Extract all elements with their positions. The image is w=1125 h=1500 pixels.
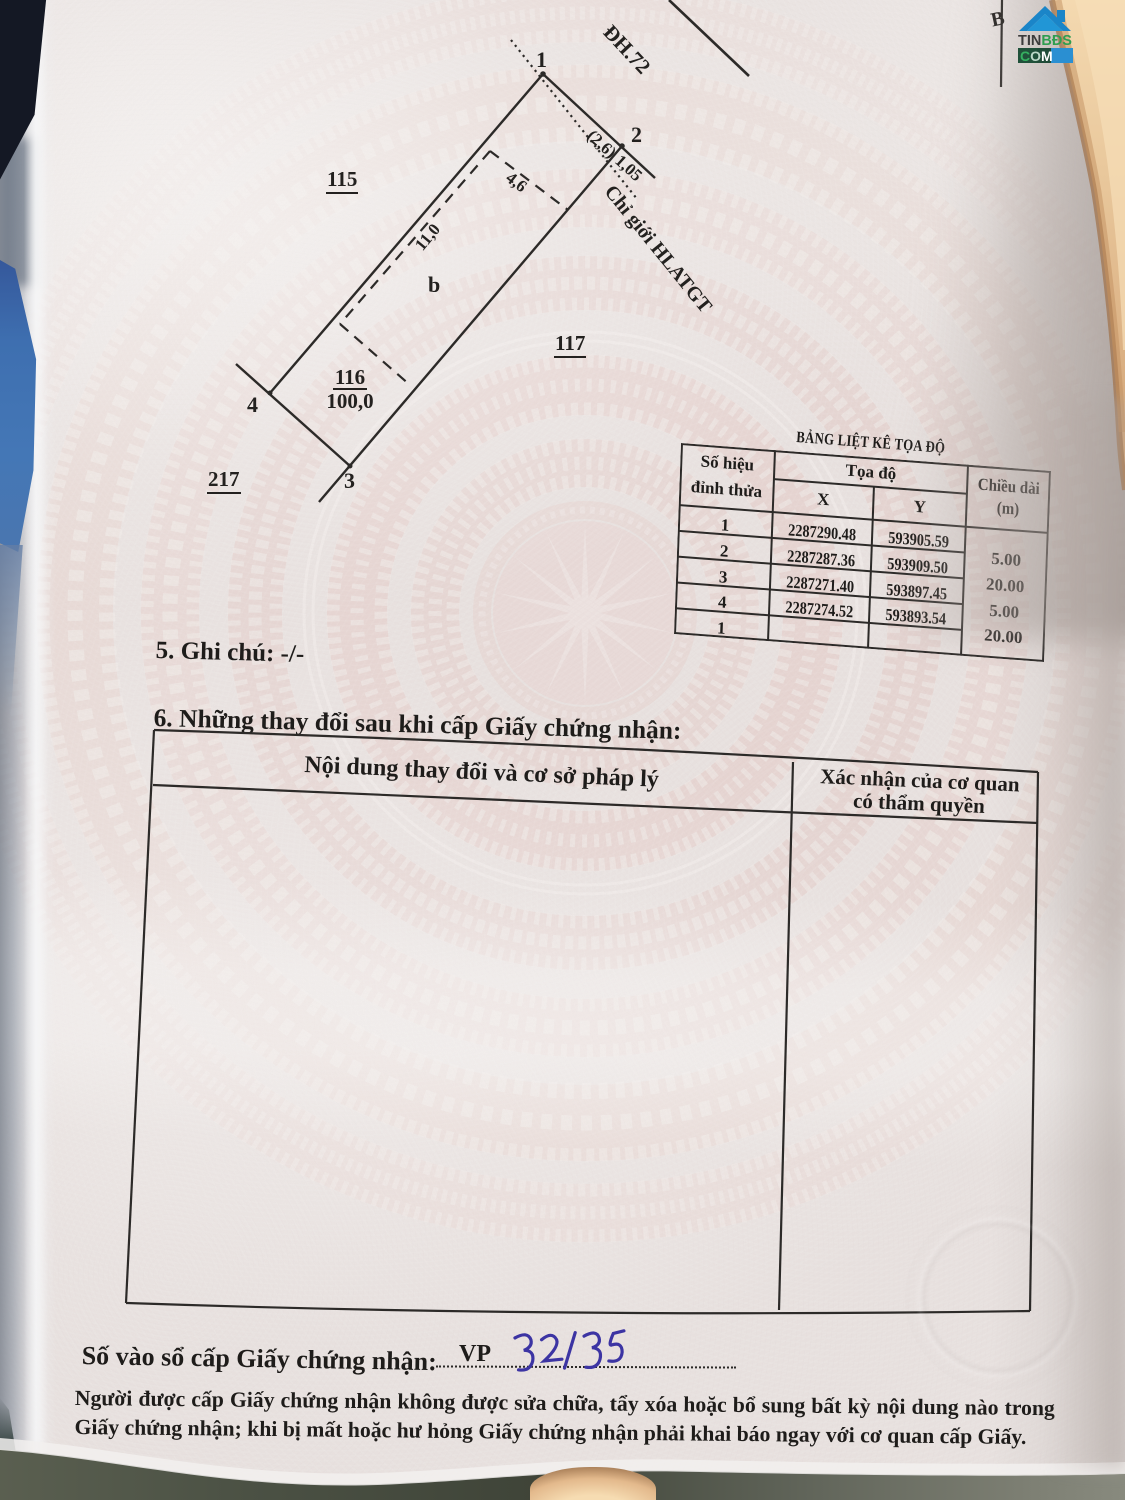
svg-text:TINBĐS: TINBĐS	[1018, 33, 1072, 49]
svg-text:COM: COM	[1020, 48, 1053, 64]
